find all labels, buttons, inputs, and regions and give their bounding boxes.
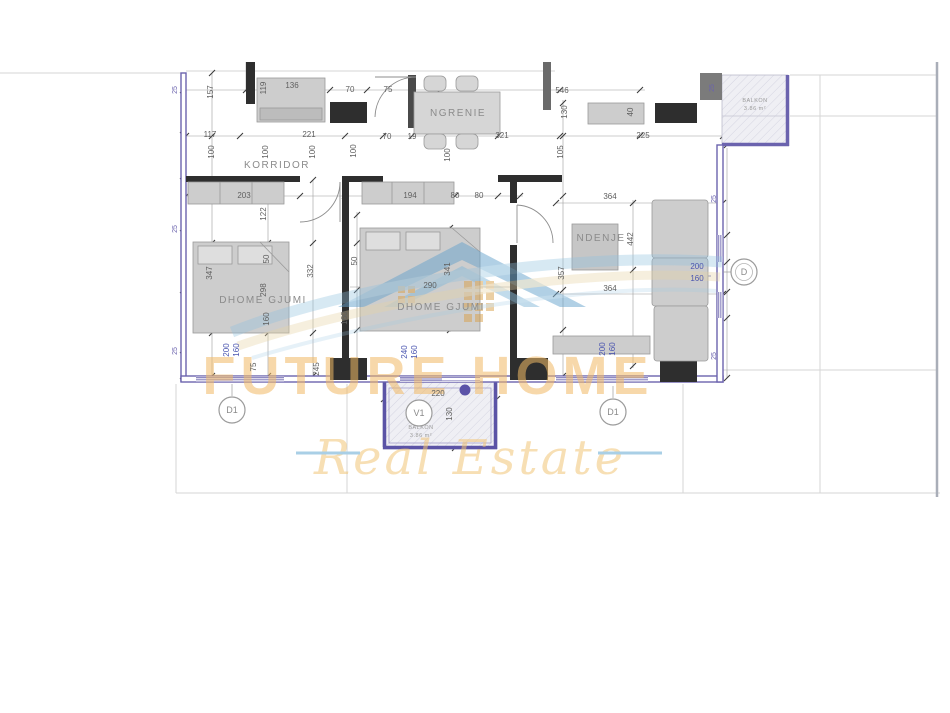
kitchen-counter-right [588, 103, 644, 124]
dimension-label: 160 [262, 312, 271, 326]
marker-label: D1 [226, 405, 238, 415]
dimension-label: 117 [204, 130, 217, 139]
marker-label: D [741, 267, 748, 277]
chair [456, 76, 478, 91]
room-label: NGRENIE [430, 108, 486, 119]
room-label: DHOME GJUMI [397, 302, 485, 313]
dimension-label: 25 [172, 86, 179, 94]
room-label: KORRIDOR [244, 160, 310, 171]
dimension-label: 105 [556, 145, 565, 159]
dimension-label: 200 [222, 343, 231, 357]
dimension-label: 221 [302, 130, 316, 139]
dimension-label: 245 [312, 362, 321, 376]
dimension-label: 100 [443, 148, 452, 162]
dimension-label: 290 [423, 281, 437, 290]
marker-label: V1 [413, 408, 424, 418]
dimension-label: 122 [259, 207, 268, 221]
dimension-label: 75 [249, 362, 258, 371]
dimension-label: 225 [636, 131, 650, 140]
dimension-label: 100 [308, 145, 317, 159]
dimension-label: 203 [237, 191, 251, 200]
dimension-label: 130 [560, 105, 569, 119]
watermark-subtitle: Real Estate [313, 430, 626, 486]
dimension-label: 100 [261, 145, 270, 159]
dimension-label: 100 [207, 145, 216, 159]
dimension-label: 546 [555, 86, 569, 95]
dimension-label: 136 [285, 81, 299, 90]
dimension-label: 50 [350, 256, 359, 265]
dimension-label: 75 [384, 85, 393, 94]
room-label: NDENJE [576, 233, 625, 244]
dimension-label: 160 [690, 274, 704, 283]
dimension-label: 160 [410, 345, 419, 359]
chair [424, 134, 446, 149]
dimension-label: 40 [626, 107, 635, 116]
dimension-label: 25 [172, 347, 179, 355]
dimension-label: 220 [431, 389, 445, 398]
dimension-label: 100 [349, 144, 358, 158]
dimension-label: 364 [603, 192, 617, 201]
dimension-label: 25 [709, 84, 716, 92]
dimension-label: 25 [711, 195, 718, 203]
door-arc-bedroom2 [517, 205, 553, 243]
window-right-2 [717, 292, 723, 318]
chair [456, 134, 478, 149]
dimension-label: 19 [408, 132, 417, 141]
dimension-label: 160 [340, 311, 349, 325]
balcony-area: 3.86 m² [744, 106, 766, 112]
dimension-label: 341 [443, 262, 452, 276]
kitchen-sink [260, 108, 322, 120]
dimension-label: 347 [205, 266, 214, 280]
dimension-label: 157 [206, 85, 215, 99]
watermark-title: FUTURE HOME [203, 346, 654, 406]
dimension-label: 25 [172, 225, 179, 233]
pillow [406, 232, 440, 250]
room-label: DHOME GJUMI [219, 295, 307, 306]
dimension-label: 119 [259, 81, 268, 94]
balcony-area: 3.86 m² [410, 433, 432, 439]
dimension-label: 50 [262, 254, 271, 263]
dimension-label: 80 [475, 191, 484, 200]
dimension-label: 200 [598, 342, 607, 356]
dimension-label: 25 [711, 352, 718, 360]
door-arc-bedroom1 [300, 182, 340, 222]
dimension-label: 321 [495, 131, 509, 140]
dimension-label: 80 [451, 191, 460, 200]
marker-label: D1 [607, 407, 619, 417]
dimension-label: 70 [383, 132, 392, 141]
dimension-label: 364 [603, 284, 617, 293]
wardrobe-bedroom1 [188, 182, 284, 204]
dimension-label: 442 [626, 232, 635, 246]
dimension-label: 200 [690, 262, 704, 271]
sofa-chaise [654, 306, 708, 361]
dimension-label: 160 [232, 343, 241, 357]
pillow [366, 232, 400, 250]
floor-plan-page: FUTURE HOME Real Estate 1571191367075546… [0, 0, 950, 713]
dimension-label: 357 [557, 266, 566, 280]
floor-plan-image: FUTURE HOME Real Estate 1571191367075546… [0, 0, 950, 713]
dimension-label: 194 [403, 191, 417, 200]
sofa-seat [652, 200, 708, 258]
balcony-name: BALKON [742, 98, 767, 104]
dimension-label: 240 [400, 345, 409, 359]
dimension-label: 332 [306, 264, 315, 278]
chair [424, 76, 446, 91]
dimension-label: 130 [445, 407, 454, 421]
pillow [198, 246, 232, 264]
dimension-label: 160 [608, 342, 617, 356]
dimension-label: 70 [346, 85, 355, 94]
